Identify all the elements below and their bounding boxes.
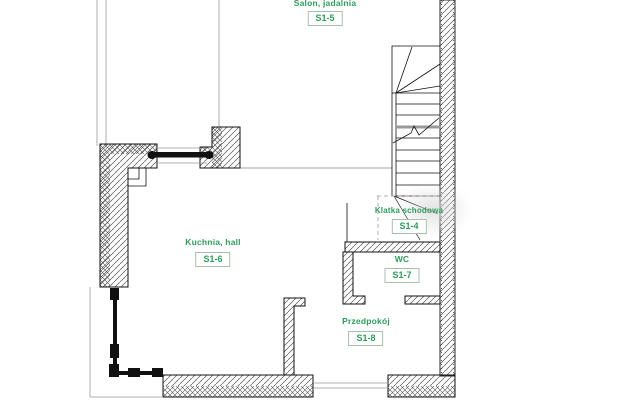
door-opening	[313, 383, 388, 388]
room-name: Przedpokój	[342, 317, 390, 326]
room-code-box: S1-7	[384, 268, 419, 283]
wall-wc-top	[345, 242, 440, 252]
room-label-przedpokoj: Przedpokój S1-8	[342, 317, 390, 346]
wall-bottom-left	[163, 375, 313, 397]
wall-wc-stub	[405, 296, 440, 304]
room-code-box: S1-5	[307, 11, 342, 26]
room-label-klatka-schodowa: Klatka schodowa S1-4	[375, 206, 443, 234]
room-label-kuchnia: Kuchnia, hall S1-6	[185, 238, 241, 267]
room-code: S1-5	[315, 13, 334, 23]
wall-pier	[200, 127, 240, 168]
stair-break-line	[393, 118, 439, 143]
room-name: Klatka schodowa	[375, 206, 443, 215]
room-code-box: S1-4	[391, 219, 426, 234]
room-code-box: S1-8	[348, 331, 383, 346]
wall-left	[100, 144, 157, 287]
room-name: Salon, jadalnia	[294, 0, 357, 8]
room-label-salon: Salon, jadalnia S1-5	[294, 0, 357, 26]
wall-right	[440, 0, 455, 376]
room-name: Kuchnia, hall	[185, 238, 241, 247]
floor-plan-drawing	[0, 0, 620, 400]
room-code: S1-6	[203, 254, 222, 264]
corner-window	[90, 287, 163, 397]
wall-bottom-right	[388, 375, 455, 397]
room-code: S1-7	[392, 270, 411, 280]
floor-plan: Salon, jadalnia S1-5 Kuchnia, hall S1-6 …	[0, 0, 620, 400]
wall-partition	[284, 298, 305, 375]
room-code: S1-4	[399, 221, 418, 231]
room-label-wc: WC S1-7	[384, 255, 419, 283]
room-code-box: S1-6	[195, 252, 230, 267]
room-code: S1-8	[356, 333, 375, 343]
wall-wc-left	[343, 252, 365, 304]
room-name: WC	[395, 255, 410, 264]
